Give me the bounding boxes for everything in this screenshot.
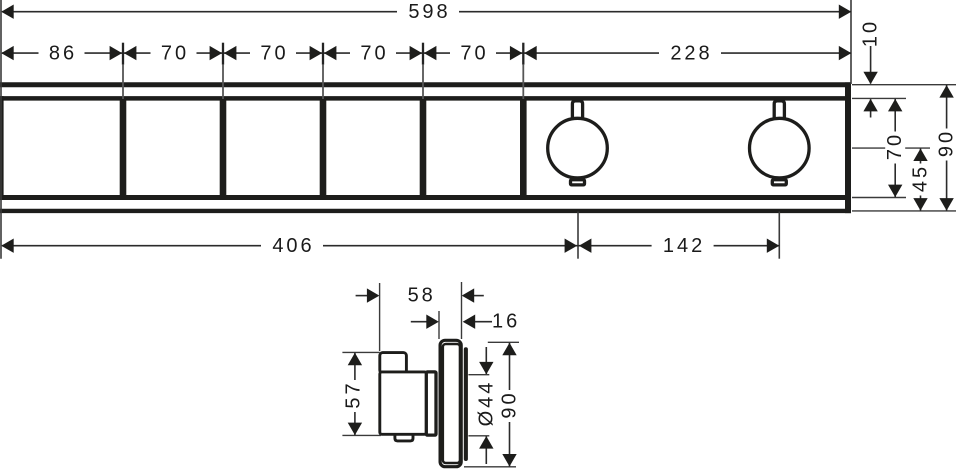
svg-text:70: 70 xyxy=(161,43,189,65)
svg-text:57: 57 xyxy=(343,380,365,408)
svg-text:45: 45 xyxy=(910,164,932,192)
svg-text:70: 70 xyxy=(884,132,906,160)
svg-text:90: 90 xyxy=(499,390,521,418)
svg-text:16: 16 xyxy=(492,311,520,333)
svg-text:70: 70 xyxy=(460,43,488,65)
svg-text:86: 86 xyxy=(49,43,77,65)
svg-text:228: 228 xyxy=(670,43,712,65)
svg-text:Ø44: Ø44 xyxy=(475,380,497,427)
svg-text:598: 598 xyxy=(408,1,450,23)
svg-text:90: 90 xyxy=(936,129,958,157)
svg-text:58: 58 xyxy=(408,285,436,307)
svg-text:10: 10 xyxy=(860,19,882,47)
svg-text:70: 70 xyxy=(260,43,288,65)
svg-text:142: 142 xyxy=(663,235,705,257)
svg-text:406: 406 xyxy=(272,235,314,257)
svg-text:70: 70 xyxy=(360,43,388,65)
